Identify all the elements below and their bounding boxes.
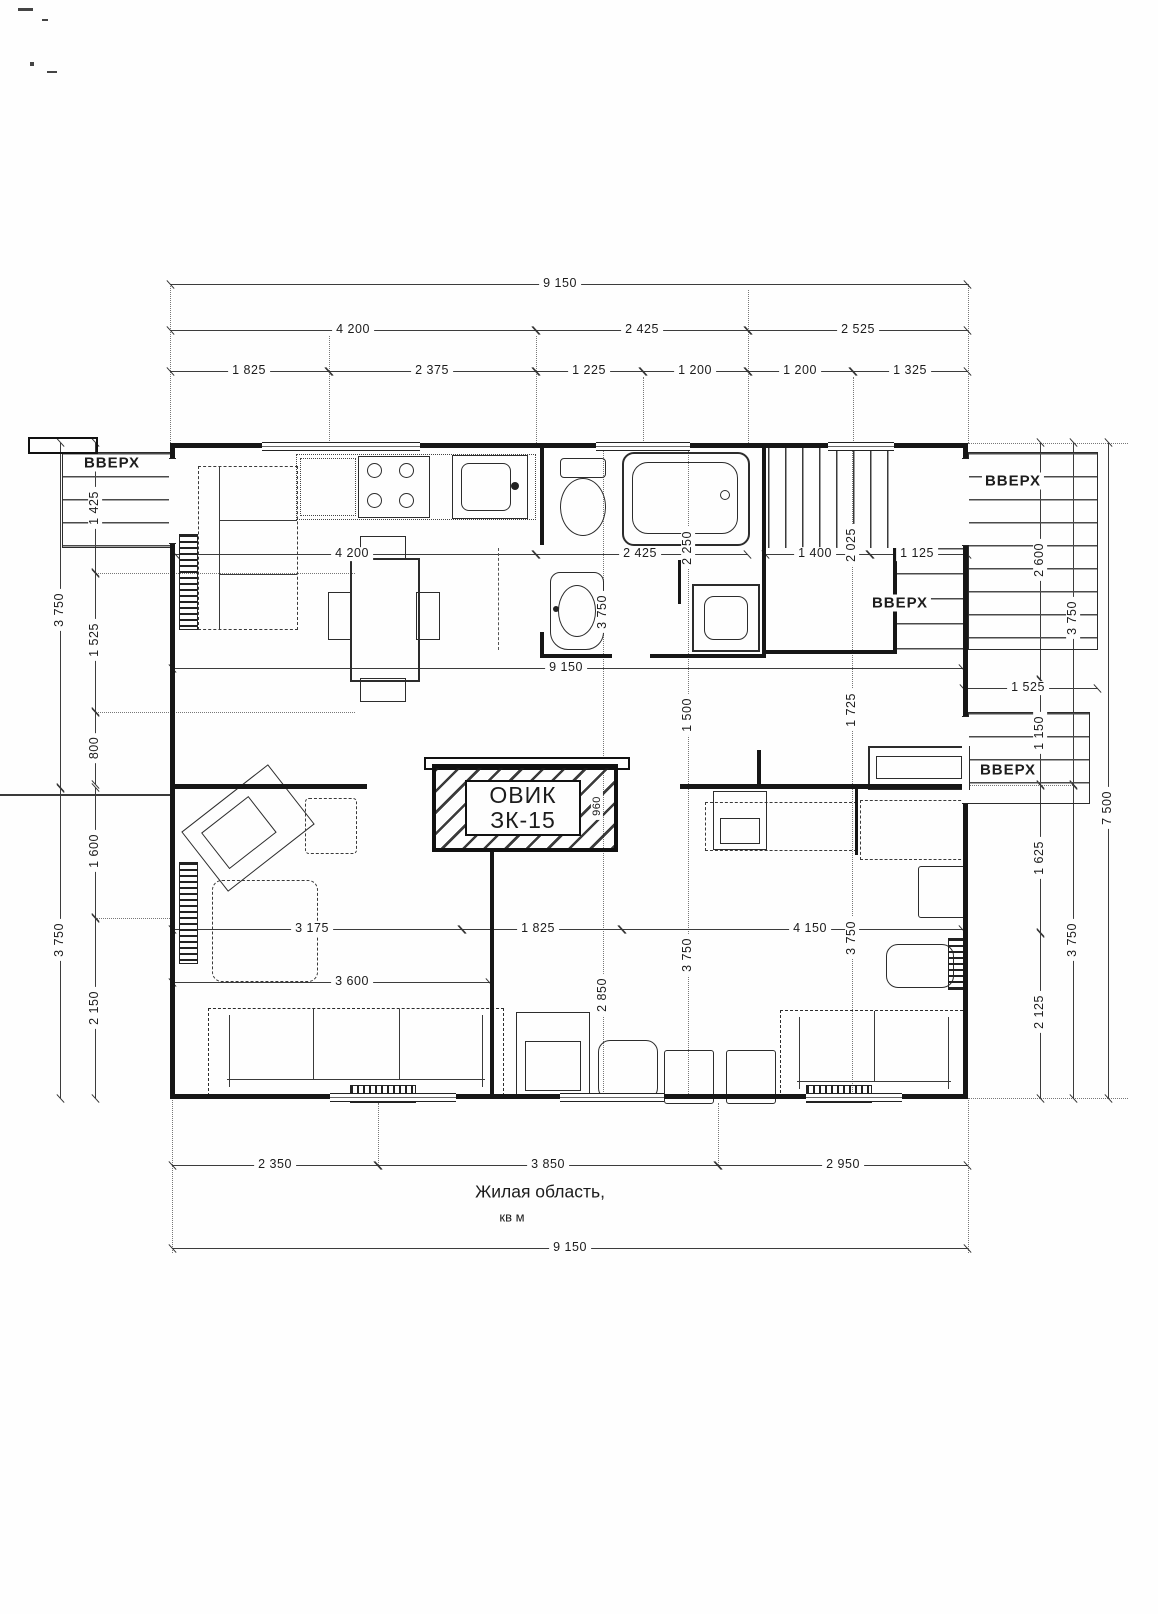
wall-extension (0, 794, 170, 796)
dim-label: 7 500 (1101, 787, 1115, 829)
dim-label: 1 200 (674, 364, 716, 378)
toilet-bowl (560, 478, 606, 536)
wall-stair-bottom (765, 650, 895, 654)
armchair (516, 1012, 590, 1098)
bathtub-drain (720, 490, 730, 500)
caption-units: кв м (499, 1210, 524, 1225)
sink-faucet (511, 482, 519, 490)
extension-line (329, 336, 330, 443)
wall-lower-divider (490, 852, 494, 1098)
sofa-back (219, 467, 220, 629)
sofa-cushion-divider (219, 574, 297, 575)
chair (305, 798, 357, 854)
dim-label: 1 525 (88, 619, 102, 661)
window (596, 442, 690, 451)
dim-label: 2 850 (596, 974, 610, 1016)
dim-label: 2 150 (88, 987, 102, 1029)
stairs-up-label: ВВЕРХ (977, 762, 1039, 779)
dim-label: 3 600 (331, 975, 373, 989)
window (262, 442, 420, 451)
dim-label: 1 825 (228, 364, 270, 378)
armchair-cushion (201, 796, 277, 869)
stove (358, 456, 430, 518)
dim-label: 2 250 (681, 527, 695, 569)
scan-artifact (47, 71, 57, 73)
sofa-seat-line (797, 1081, 951, 1082)
dim-label: 2 950 (822, 1158, 864, 1172)
sofa-cushion-divider (219, 520, 297, 521)
extension-line (748, 290, 749, 443)
dim-label: 3 750 (596, 591, 610, 633)
dim-label: 3 750 (53, 589, 67, 631)
radiator (179, 862, 198, 964)
dim-label: 4 200 (332, 323, 374, 337)
stove-burner (399, 463, 414, 478)
dim-label: 3 175 (291, 922, 333, 936)
sofa (208, 1008, 504, 1096)
dim-line (1108, 443, 1109, 1098)
dim-label: 1 125 (896, 547, 938, 561)
dim-label: 3 750 (845, 917, 859, 959)
wall-bath-bottom (650, 654, 766, 658)
extension-line (968, 443, 1128, 444)
dim-label: 1 150 (1033, 712, 1047, 754)
dim-label: 3 850 (527, 1158, 569, 1172)
bed (860, 800, 966, 860)
dim-label: 3 750 (681, 934, 695, 976)
dim-label: 2 025 (845, 524, 859, 566)
extension-line (968, 1098, 969, 1253)
dim-label: 2 600 (1033, 539, 1047, 581)
sofa-seat-line (227, 1079, 485, 1080)
furnace-name-line2: ЗК-15 (490, 808, 556, 833)
door-opening (169, 458, 176, 544)
dim-label: 1 825 (517, 922, 559, 936)
wall-bath-bottom (540, 654, 612, 658)
dim-label: 4 150 (789, 922, 831, 936)
dim-label: 2 425 (619, 547, 661, 561)
stove-burner (399, 493, 414, 508)
extension-line (378, 1103, 379, 1165)
sofa-armrest (209, 1015, 230, 1087)
dim-label: 2 375 (411, 364, 453, 378)
dim-label: 9 150 (539, 277, 581, 291)
dim-label: 9 150 (545, 661, 587, 675)
kitchen-sink (452, 455, 528, 519)
scan-artifact (42, 19, 48, 21)
dim-label: 1 625 (1033, 837, 1047, 879)
dim-label: 9 150 (549, 1241, 591, 1255)
dim-label: 3 750 (53, 919, 67, 961)
furnace-depth-label: 960 (591, 792, 603, 820)
stairs-up-label: ВВЕРХ (81, 455, 143, 472)
wall-middle-left (170, 784, 367, 789)
radiator (179, 534, 198, 630)
window (330, 1093, 456, 1102)
dim-label: 3 750 (1066, 597, 1080, 639)
dim-label: 4 200 (331, 547, 373, 561)
wardrobe-inner (876, 756, 962, 779)
dim-label: 2 350 (254, 1158, 296, 1172)
toilet-tank (560, 458, 606, 478)
dim-label: 1 400 (794, 547, 836, 561)
extension-line (853, 377, 854, 443)
door-opening (962, 716, 969, 804)
chair-cushion (720, 818, 760, 844)
sofa-armrest (781, 1017, 800, 1089)
wall-bath-right (762, 443, 766, 658)
dim-label: 1 200 (779, 364, 821, 378)
chair (918, 866, 966, 918)
sofa-cushion-divider (399, 1009, 400, 1079)
stove-burner (367, 463, 382, 478)
stairs-up-label: ВВЕРХ (869, 595, 931, 612)
sofa-cushion-divider (874, 1011, 875, 1081)
ottoman (598, 1040, 658, 1100)
dim-label: 2 125 (1033, 991, 1047, 1033)
extension-line (170, 284, 171, 443)
sofa-cushion-divider (313, 1009, 314, 1079)
extension-line (968, 1098, 1128, 1099)
scan-artifact (30, 62, 34, 66)
external-stairs-mid-right (968, 712, 1090, 804)
furnace-name-line1: ОВИК (489, 783, 556, 808)
bath-door-leaf (498, 548, 499, 650)
shower-tray (692, 584, 760, 652)
dining-chair (328, 592, 352, 640)
dim-label: 1 725 (845, 689, 859, 731)
dim-label: 1 425 (88, 487, 102, 529)
extension-line (718, 1103, 719, 1165)
dining-chair (416, 592, 440, 640)
dim-label: 1 525 (1007, 681, 1049, 695)
extension-line (95, 712, 355, 713)
extension-line (172, 1098, 173, 1253)
dim-label: 1 600 (88, 830, 102, 872)
window (806, 1093, 902, 1102)
dining-chair (360, 678, 406, 702)
wall-middle-right (680, 784, 968, 789)
extension-line (643, 377, 644, 443)
washbasin-bowl (558, 585, 596, 637)
window (560, 1093, 664, 1102)
dim-label: 2 425 (621, 323, 663, 337)
scan-artifact (18, 8, 33, 11)
extension-line (95, 918, 172, 919)
dim-label: 1 225 (568, 364, 610, 378)
sink-basin (461, 463, 511, 511)
shower-tray-inner (704, 596, 748, 640)
stairs-up-label: ВВЕРХ (982, 473, 1044, 490)
floor-plan-scan: 9 150 4 200 2 425 2 525 1 825 2 375 1 22… (0, 0, 1158, 1614)
desk-chair (713, 791, 767, 850)
dining-table (350, 558, 420, 682)
caption-title: Жилая область, (475, 1182, 605, 1203)
kitchen-cabinet (300, 458, 356, 516)
wall-bath-left (540, 443, 544, 545)
armchair-cushion (525, 1041, 581, 1091)
dim-label: 3 750 (1066, 919, 1080, 961)
side-table (886, 944, 954, 988)
porch-step (28, 437, 98, 454)
extension-line (536, 336, 537, 443)
dim-label: 800 (88, 733, 102, 763)
extension-line (968, 284, 969, 443)
stove-burner (367, 493, 382, 508)
sofa (198, 466, 298, 630)
interior-staircase (768, 448, 890, 548)
furnace-label: ОВИК ЗК-15 (465, 780, 581, 836)
dim-label: 2 525 (837, 323, 879, 337)
wall-bedroom-stub (855, 789, 858, 855)
window (828, 442, 894, 451)
dim-label: 1 325 (889, 364, 931, 378)
dim-label: 1 500 (681, 694, 695, 736)
wall-stub-t (757, 750, 761, 784)
door-opening (962, 458, 969, 546)
